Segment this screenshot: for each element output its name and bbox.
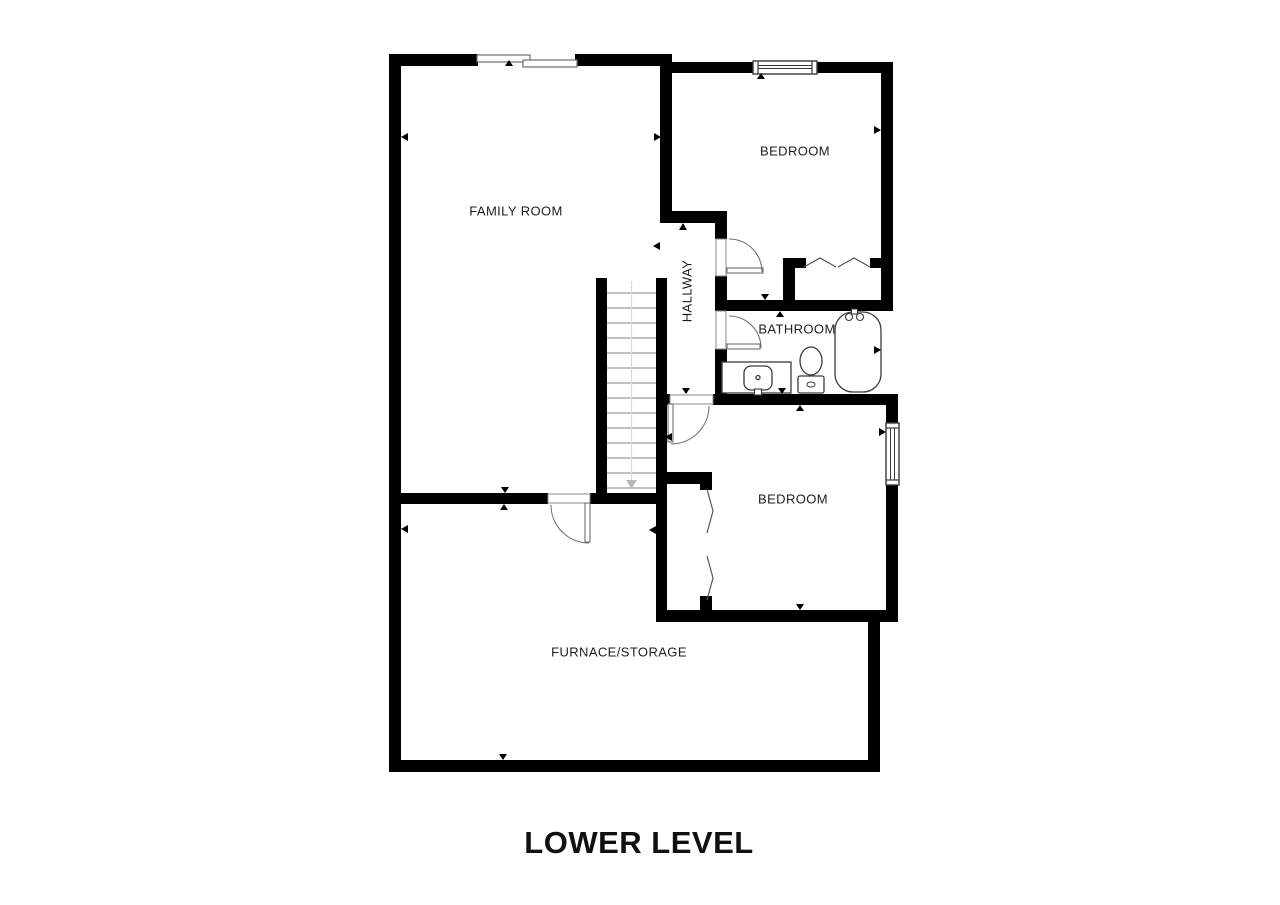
sink-drain [756, 376, 760, 380]
wall-stairs-west [596, 278, 607, 504]
wall-west [389, 54, 401, 772]
family-room-window-pane-a [477, 55, 530, 62]
wall-top-mid [575, 54, 672, 66]
wall-marker [499, 754, 507, 760]
wall-marker [653, 242, 660, 250]
bathtub-faucet-handle [846, 314, 853, 321]
wall-closet1-west [783, 258, 795, 311]
wall-marker [679, 223, 687, 230]
wall-stairs-east [656, 278, 667, 622]
wall-east-lower-b [886, 484, 898, 622]
closet-lower-bifold-door [707, 489, 713, 533]
room-label-bedroom-lower: BEDROOM [758, 492, 828, 507]
wall-bathroom-bottom [713, 394, 898, 405]
toilet-bowl [800, 347, 822, 375]
wall-marker [874, 126, 881, 134]
bathtub-faucet-handle [857, 314, 864, 321]
wall-marker [776, 311, 784, 317]
closet-upper-bifold-door [838, 258, 870, 267]
floor-plan-drawing [0, 0, 1280, 905]
wall-hallway-east-b [715, 276, 727, 311]
wall-marker [649, 526, 656, 534]
wall-marker [879, 428, 886, 436]
bathroom-door-panel [727, 344, 760, 349]
bathroom-door-swing-arc [729, 316, 761, 348]
wall-marker [796, 604, 804, 610]
wall-family-south [389, 493, 548, 504]
wall-bedroom1-top-left [660, 62, 754, 73]
staircase [607, 281, 656, 489]
bedroom-upper-door-panel [727, 268, 763, 273]
wall-bathroom-top [715, 300, 893, 311]
bathtub-faucet-spout [852, 309, 858, 314]
toilet-flush-button [807, 382, 815, 387]
wall-closet2-nib-bottom [700, 596, 712, 622]
bedroom-upper-door-swing-arc [729, 239, 762, 272]
wall-bedroom2-south [656, 610, 898, 622]
bedroom-lower-window [886, 423, 899, 485]
floor-plan-page: { "title": "LOWER LEVEL", "rooms": { "fa… [0, 0, 1280, 905]
bedroom-lower-door-swing-arc [671, 406, 709, 444]
sink-faucet [755, 389, 762, 395]
family-room-window-pane-b [523, 60, 577, 67]
wall-marker [654, 133, 661, 141]
room-label-hallway: HALLWAY [680, 260, 695, 323]
wall-furnace-bottom [389, 760, 880, 772]
bedroom-upper-door-frame [716, 239, 726, 276]
furnace-door-frame [548, 494, 590, 503]
wall-closet2-nib-top [700, 472, 712, 490]
wall-furnace-east [868, 610, 880, 772]
wall-east-upper [881, 62, 893, 311]
room-label-family-room: FAMILY ROOM [469, 204, 563, 219]
floor-title: LOWER LEVEL [524, 825, 753, 861]
wall-marker [682, 388, 690, 394]
room-label-bedroom-upper: BEDROOM [760, 144, 830, 159]
wall-closet2-north [656, 472, 707, 484]
bathroom-door-frame [716, 311, 726, 349]
wall-marker [500, 504, 508, 510]
closet-upper-bifold-door [804, 258, 836, 267]
bedroom-lower-door-frame [670, 395, 713, 404]
furnace-door-swing-arc [551, 505, 589, 543]
room-label-furnace-storage: FURNACE/STORAGE [551, 645, 687, 660]
wall-stairs-bottom [590, 493, 667, 504]
wall-marker [401, 525, 408, 533]
wall-familyroom-east [660, 54, 672, 223]
wall-marker [761, 294, 769, 300]
closet-lower-bifold-door [707, 556, 713, 600]
wall-hallway-south [656, 394, 670, 405]
room-label-bathroom: BATHROOM [758, 322, 835, 337]
wall-hallway-east-a [715, 211, 727, 239]
wall-marker [501, 487, 509, 493]
wall-marker [401, 133, 408, 141]
wall-closet1-nib-b [870, 258, 883, 268]
bedroom-upper-window [753, 61, 817, 74]
wall-top-left [389, 54, 478, 66]
wall-east-lower-a [886, 394, 898, 424]
furnace-door-panel [585, 503, 590, 542]
wall-marker [796, 405, 804, 411]
